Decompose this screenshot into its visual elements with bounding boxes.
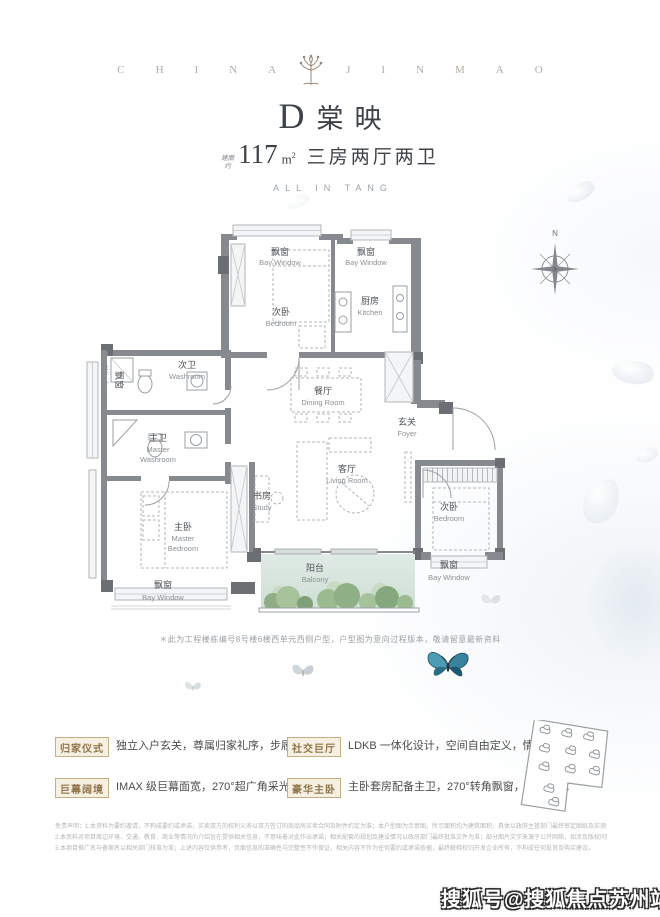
svg-text:餐厅: 餐厅 — [314, 385, 332, 396]
legal-line: 3.本项目推广名与备案名以相关部门核准为准；上述内容仅供参考，页面信息的准确性与… — [55, 844, 607, 855]
floorplan-poster: CHINA JINMAO D 棠映 建面约 117 m2 — [0, 0, 660, 917]
plan-note: ＊此为工程楼栋编号8号楼6楼西单元西侧户型，户型图为意向过程版本，敬请留意最新资… — [0, 634, 660, 645]
room-label-bay-window-kitchen: 飘窗 Bay Window — [345, 246, 387, 267]
feature-item: 社交巨厅 LDKB 一体化设计，空间自由定义，情感无界交融 — [287, 737, 517, 757]
svg-text:飘窗: 飘窗 — [271, 246, 289, 257]
feather-decoration — [610, 355, 657, 389]
room-label-dining: 餐厅 Dining Room — [301, 385, 344, 407]
svg-text:Bay Window: Bay Window — [428, 573, 470, 582]
svg-text:书房: 书房 — [253, 490, 271, 501]
svg-text:玄关: 玄关 — [398, 416, 416, 427]
north-label: N — [552, 229, 558, 238]
feature-item: 归家仪式 独立入户玄关，尊属归家礼序，步履优雅从容 — [55, 737, 287, 757]
svg-text:主卧: 主卧 — [174, 521, 192, 532]
room-label-washroom: 次卫 Washroom — [169, 359, 205, 381]
svg-text:Study: Study — [252, 503, 271, 512]
feature-badge: 社交巨厅 — [287, 737, 341, 757]
svg-text:Bay Window: Bay Window — [259, 258, 301, 267]
feature-badge: 豪华主卧 — [287, 778, 341, 798]
feature-badge: 巨幕阔境 — [55, 778, 109, 798]
svg-text:阳台: 阳台 — [306, 562, 324, 573]
watermark: 搜狐号@搜狐焦点苏州站 — [441, 883, 660, 912]
feather-decoration — [285, 192, 312, 211]
brand-word-china: CHINA — [117, 64, 307, 76]
svg-text:飘窗: 飘窗 — [114, 371, 125, 389]
svg-text:Washroom: Washroom — [140, 455, 176, 464]
svg-text:飘窗: 飘窗 — [440, 559, 458, 570]
legal-line: 免责声明：1.本资料为要约邀请，不构成要约或承诺，买卖双方的权利义务以双方签订的… — [55, 822, 607, 833]
jinmao-tree-logo-icon — [298, 54, 324, 86]
butterfly-gray-icon — [291, 662, 315, 682]
svg-text:Living Room: Living Room — [326, 476, 368, 485]
svg-text:Bedroom: Bedroom — [434, 514, 464, 523]
room-label-master-bedroom: 主卧 Master Bedroom — [168, 521, 198, 553]
svg-text:Dining Room: Dining Room — [301, 398, 344, 407]
room-label-bedroom-north: 次卧 Bedroom — [266, 306, 296, 328]
svg-text:主卫: 主卫 — [149, 432, 167, 443]
room-label-kitchen: 厨房 Kitchen — [357, 295, 382, 317]
svg-text:Kitchen: Kitchen — [357, 308, 382, 317]
feature-item: 巨幕阔境 IMAX 级巨幕面宽，270°超广角采光，瞰景 — [55, 778, 287, 798]
feather-blur-decoration — [586, 548, 660, 668]
svg-text:Balcony: Balcony — [302, 575, 329, 584]
svg-text:次卫: 次卫 — [178, 359, 196, 370]
svg-text:Bedroom: Bedroom — [266, 319, 296, 328]
room-label-master-washroom: 主卫 Master Washroom — [140, 432, 176, 464]
svg-text:Master: Master — [147, 445, 170, 454]
butterfly-blue-icon — [424, 646, 472, 688]
room-label-living: 客厅 Living Room — [326, 463, 368, 485]
feature-badge: 归家仪式 — [55, 737, 109, 757]
room-label-bay-window-top: 飘窗 Bay Window — [259, 246, 301, 267]
legal-line: 2.本资料对项目周边环境、交通、教育、商业等情况的介绍旨在提供相关信息，不意味着… — [55, 833, 607, 844]
svg-text:厨房: 厨房 — [361, 295, 379, 306]
svg-text:Washroom: Washroom — [169, 372, 205, 381]
svg-text:客厅: 客厅 — [338, 463, 356, 474]
unit-name: 棠映 — [317, 97, 393, 136]
svg-text:Bedroom: Bedroom — [168, 544, 198, 553]
butterfly-gray-icon — [184, 680, 202, 695]
brand-header: CHINA JINMAO — [0, 54, 660, 86]
unit-letter: D — [279, 98, 305, 134]
compass-icon: N — [527, 224, 583, 302]
area-prefix: 建面约 — [221, 155, 234, 170]
area-value: 117 — [238, 141, 278, 168]
unit-layout: 三房两厅两卫 — [307, 142, 439, 169]
svg-text:次卧: 次卧 — [272, 306, 290, 317]
svg-text:次卧: 次卧 — [440, 501, 458, 512]
feature-item: 豪华主卧 主卧套房配备主卫，270°转角飘窗，气派非凡 — [287, 778, 517, 798]
svg-text:Master: Master — [172, 534, 195, 543]
room-label-foyer: 玄关 Foyer — [397, 416, 417, 438]
feather-decoration — [635, 446, 659, 464]
slogan: ALL IN TANG — [0, 183, 660, 193]
butterfly-gray-icon — [480, 592, 502, 610]
svg-text:飘窗: 飘窗 — [357, 246, 375, 257]
floorplan-drawing: 飘窗 Bay Window 飘窗 Bay Window 次卧 Bedroom 厨… — [85, 222, 515, 625]
feather-decoration — [580, 475, 623, 527]
brand-word-jinmao: JINMAO — [346, 64, 574, 76]
svg-text:Bay Window: Bay Window — [345, 258, 387, 267]
features-section: 归家仪式 独立入户玄关，尊属归家礼序，步履优雅从容 社交巨厅 LDKB 一体化设… — [55, 737, 517, 798]
svg-text:Bay Window: Bay Window — [142, 593, 184, 602]
svg-text:飘窗: 飘窗 — [154, 579, 172, 590]
legal-text: 免责声明：1.本资料为要约邀请，不构成要约或承诺，买卖双方的权利义务以双方签订的… — [55, 822, 607, 855]
room-label-bedroom-east: 次卧 Bedroom — [434, 501, 464, 523]
svg-text:Bay Window: Bay Window — [101, 351, 110, 393]
unit-title-block: D 棠映 建面约 117 m2 三房两厅两卫 ALL IN TANG — [0, 97, 660, 193]
area-unit: m2 — [282, 151, 296, 167]
svg-text:Foyer: Foyer — [397, 429, 417, 438]
siteplan-map — [505, 720, 635, 824]
